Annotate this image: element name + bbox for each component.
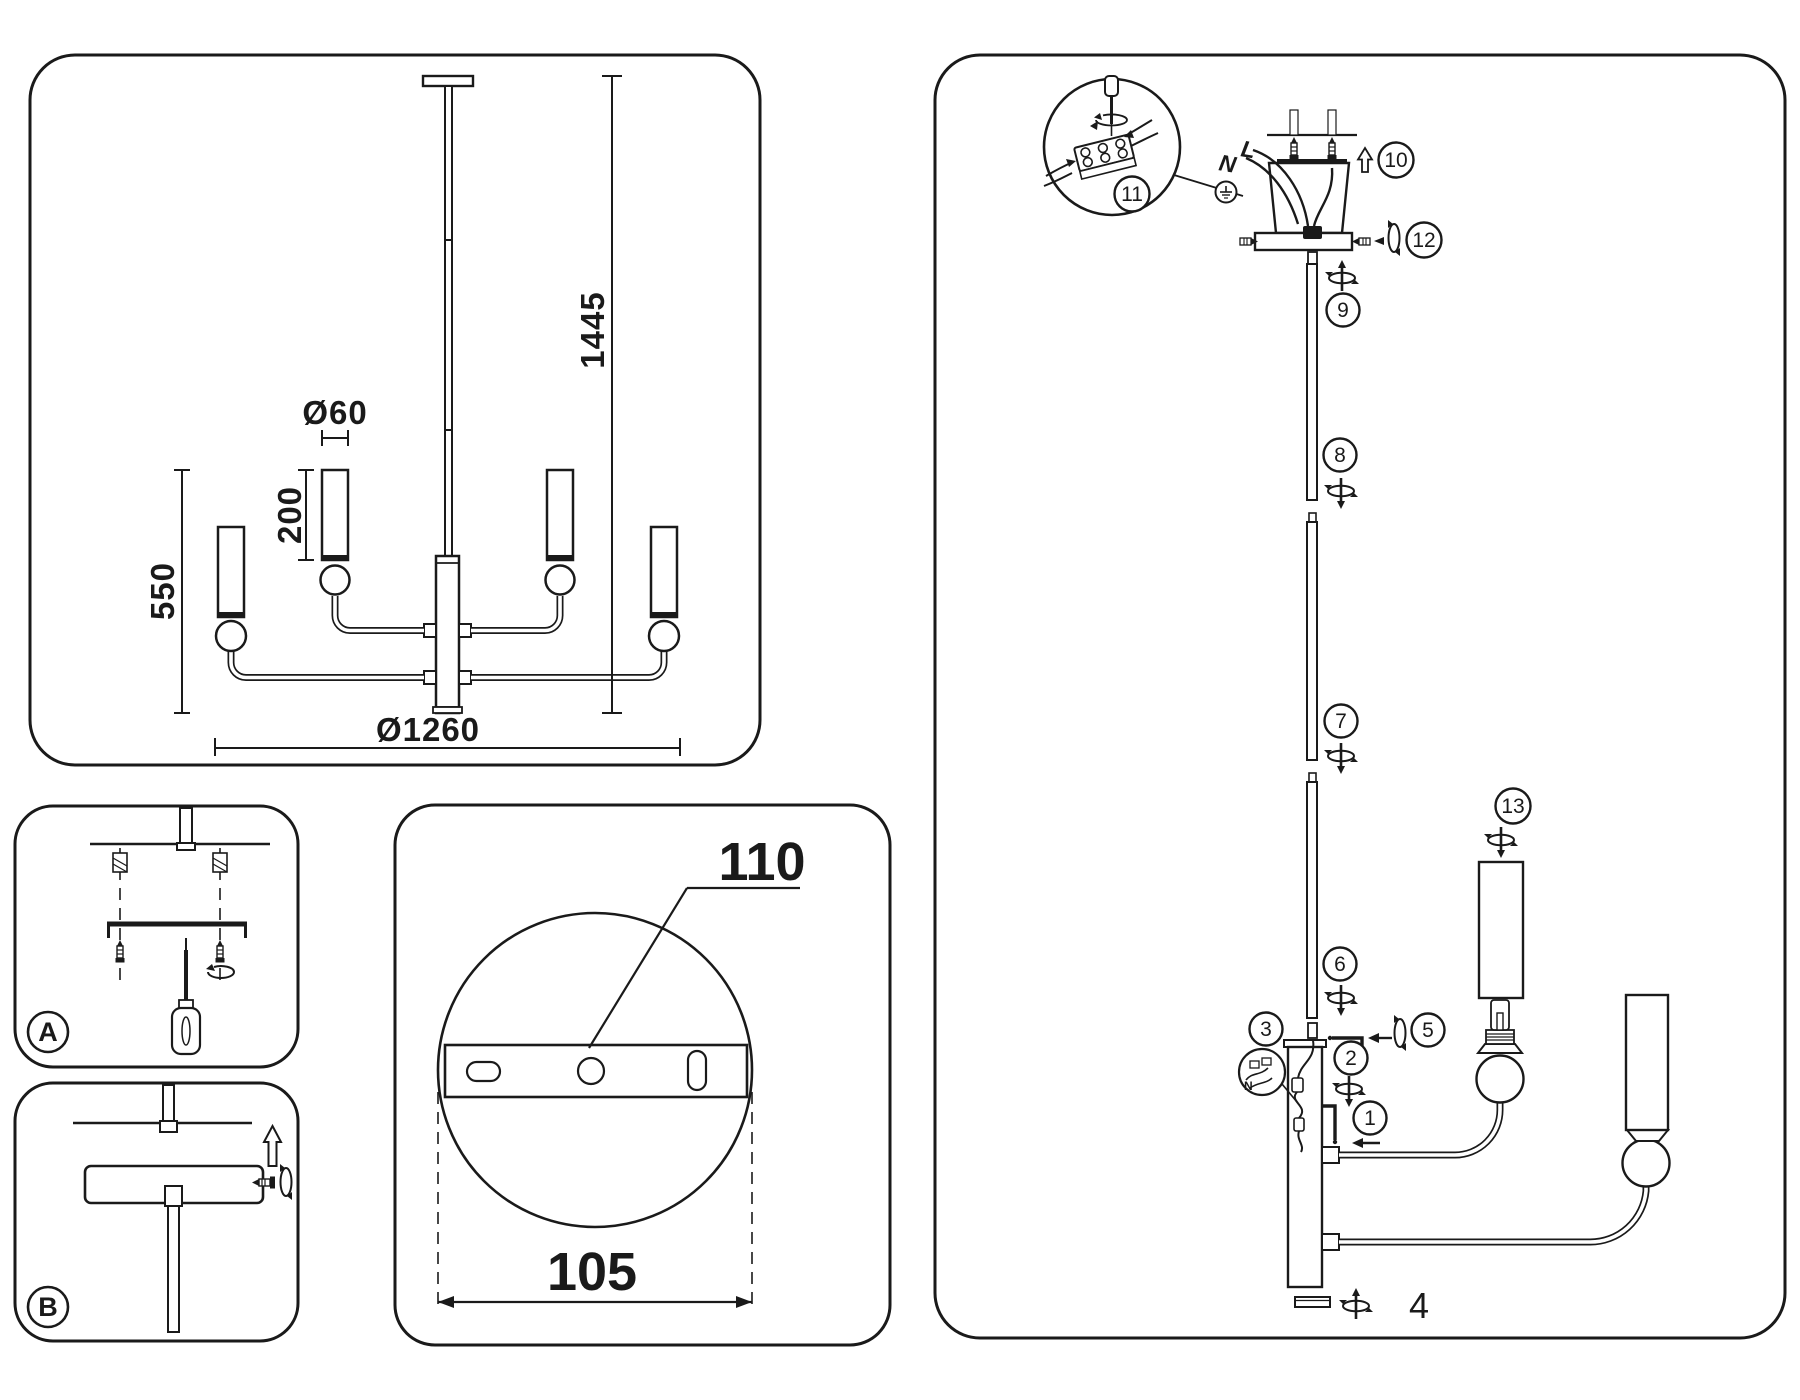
rod-segment [1307, 522, 1317, 760]
arm-bracket [424, 624, 436, 637]
svg-text:N: N [1244, 1079, 1253, 1093]
diagram-canvas: Ø60 200 550 1445 Ø1260 [0, 0, 1800, 1400]
svg-text:550: 550 [144, 562, 181, 620]
svg-text:A: A [38, 1017, 58, 1047]
arm-sphere [649, 621, 679, 651]
svg-text:10: 10 [1384, 149, 1407, 172]
svg-text:200: 200 [271, 486, 308, 544]
step-7-balloon: 7 [1325, 705, 1358, 738]
arm-bracket [459, 671, 471, 684]
arm-bracket [424, 671, 436, 684]
arm-socket [1322, 1234, 1339, 1250]
overview-panel: Ø60 200 550 1445 Ø1260 [30, 55, 760, 765]
arm-sphere [1623, 1140, 1670, 1187]
rod-segment [1307, 264, 1317, 500]
svg-text:11: 11 [1121, 183, 1143, 206]
hanging-bolt [180, 808, 192, 846]
canopy-cone [1269, 163, 1349, 233]
arm-bracket [459, 624, 471, 637]
svg-text:6: 6 [1334, 953, 1346, 976]
svg-text:13: 13 [1501, 795, 1524, 818]
svg-text:1445: 1445 [574, 291, 611, 368]
cable-gland [1303, 226, 1322, 239]
step-3-balloon: 3 [1250, 1013, 1283, 1046]
svg-text:B: B [38, 1292, 58, 1322]
svg-text:105: 105 [547, 1242, 637, 1302]
step-1-balloon: 1 [1354, 1102, 1387, 1135]
step-10-balloon: 10 [1379, 143, 1414, 178]
rod-thread-tip [1309, 773, 1316, 782]
step-8-balloon: 8 [1324, 439, 1357, 472]
step-12-balloon: 12 [1407, 223, 1442, 258]
glass-shade [1626, 995, 1668, 1130]
svg-text:3: 3 [1260, 1018, 1272, 1041]
instruction-sheet: Ø60 200 550 1445 Ø1260 [0, 0, 1800, 1400]
suspension-rod [445, 86, 452, 556]
lamp-socket-threads [1486, 1030, 1514, 1044]
canopy-dimension-panel: 110 105 [395, 805, 890, 1345]
arm-sphere [321, 566, 350, 595]
mount-step-b-panel: B [15, 1083, 298, 1341]
arm-socket [1322, 1147, 1339, 1163]
arm-sphere [1477, 1056, 1524, 1103]
bottom-cap [1295, 1297, 1330, 1307]
svg-text:2: 2 [1345, 1047, 1357, 1070]
shade-flange [1478, 1044, 1522, 1053]
mount-step-a-panel: A [15, 806, 298, 1067]
glass-shade [1479, 862, 1523, 998]
svg-text:12: 12 [1412, 229, 1435, 252]
slot-horizontal [467, 1062, 500, 1081]
canopy-hub [165, 1186, 182, 1206]
svg-text:1: 1 [1364, 1107, 1376, 1130]
rod-segment [1307, 782, 1317, 1018]
svg-text:7: 7 [1335, 710, 1347, 733]
ceiling-hatch [1267, 100, 1357, 135]
svg-text:9: 9 [1337, 299, 1349, 322]
center-hole [578, 1058, 604, 1084]
step-9-balloon: 9 [1327, 294, 1360, 327]
step-4-label: 4 [1409, 1285, 1429, 1326]
slot-vertical [688, 1051, 706, 1090]
svg-text:110: 110 [718, 832, 805, 892]
svg-text:5: 5 [1422, 1019, 1434, 1042]
panel-a-label: A [28, 1012, 68, 1052]
step-5-balloon: 5 [1412, 1014, 1445, 1047]
overview-panel-border [30, 55, 760, 765]
svg-text:Ø60: Ø60 [302, 394, 367, 431]
rod-nipple [1308, 252, 1317, 264]
ground-icon [1216, 182, 1237, 203]
hanging-rod [168, 1206, 179, 1332]
central-column [433, 556, 462, 713]
hanging-bolt [163, 1085, 174, 1123]
rod-thread-tip [1309, 513, 1316, 522]
assembly-panel: 11 N L [935, 55, 1785, 1338]
svg-text:Ø1260: Ø1260 [376, 711, 480, 748]
panel-b-label: B [28, 1287, 68, 1327]
central-column [1284, 1040, 1326, 1287]
step-13-balloon: 13 [1496, 789, 1531, 824]
step-11-balloon: 11 [1115, 177, 1150, 212]
arm-sphere [546, 566, 575, 595]
arm-sphere [216, 621, 246, 651]
step-2-balloon: 2 [1335, 1042, 1368, 1075]
ceiling-plate [423, 76, 473, 86]
rod-nipple [1308, 1023, 1317, 1038]
step-6-balloon: 6 [1324, 948, 1357, 981]
svg-text:8: 8 [1334, 444, 1346, 467]
